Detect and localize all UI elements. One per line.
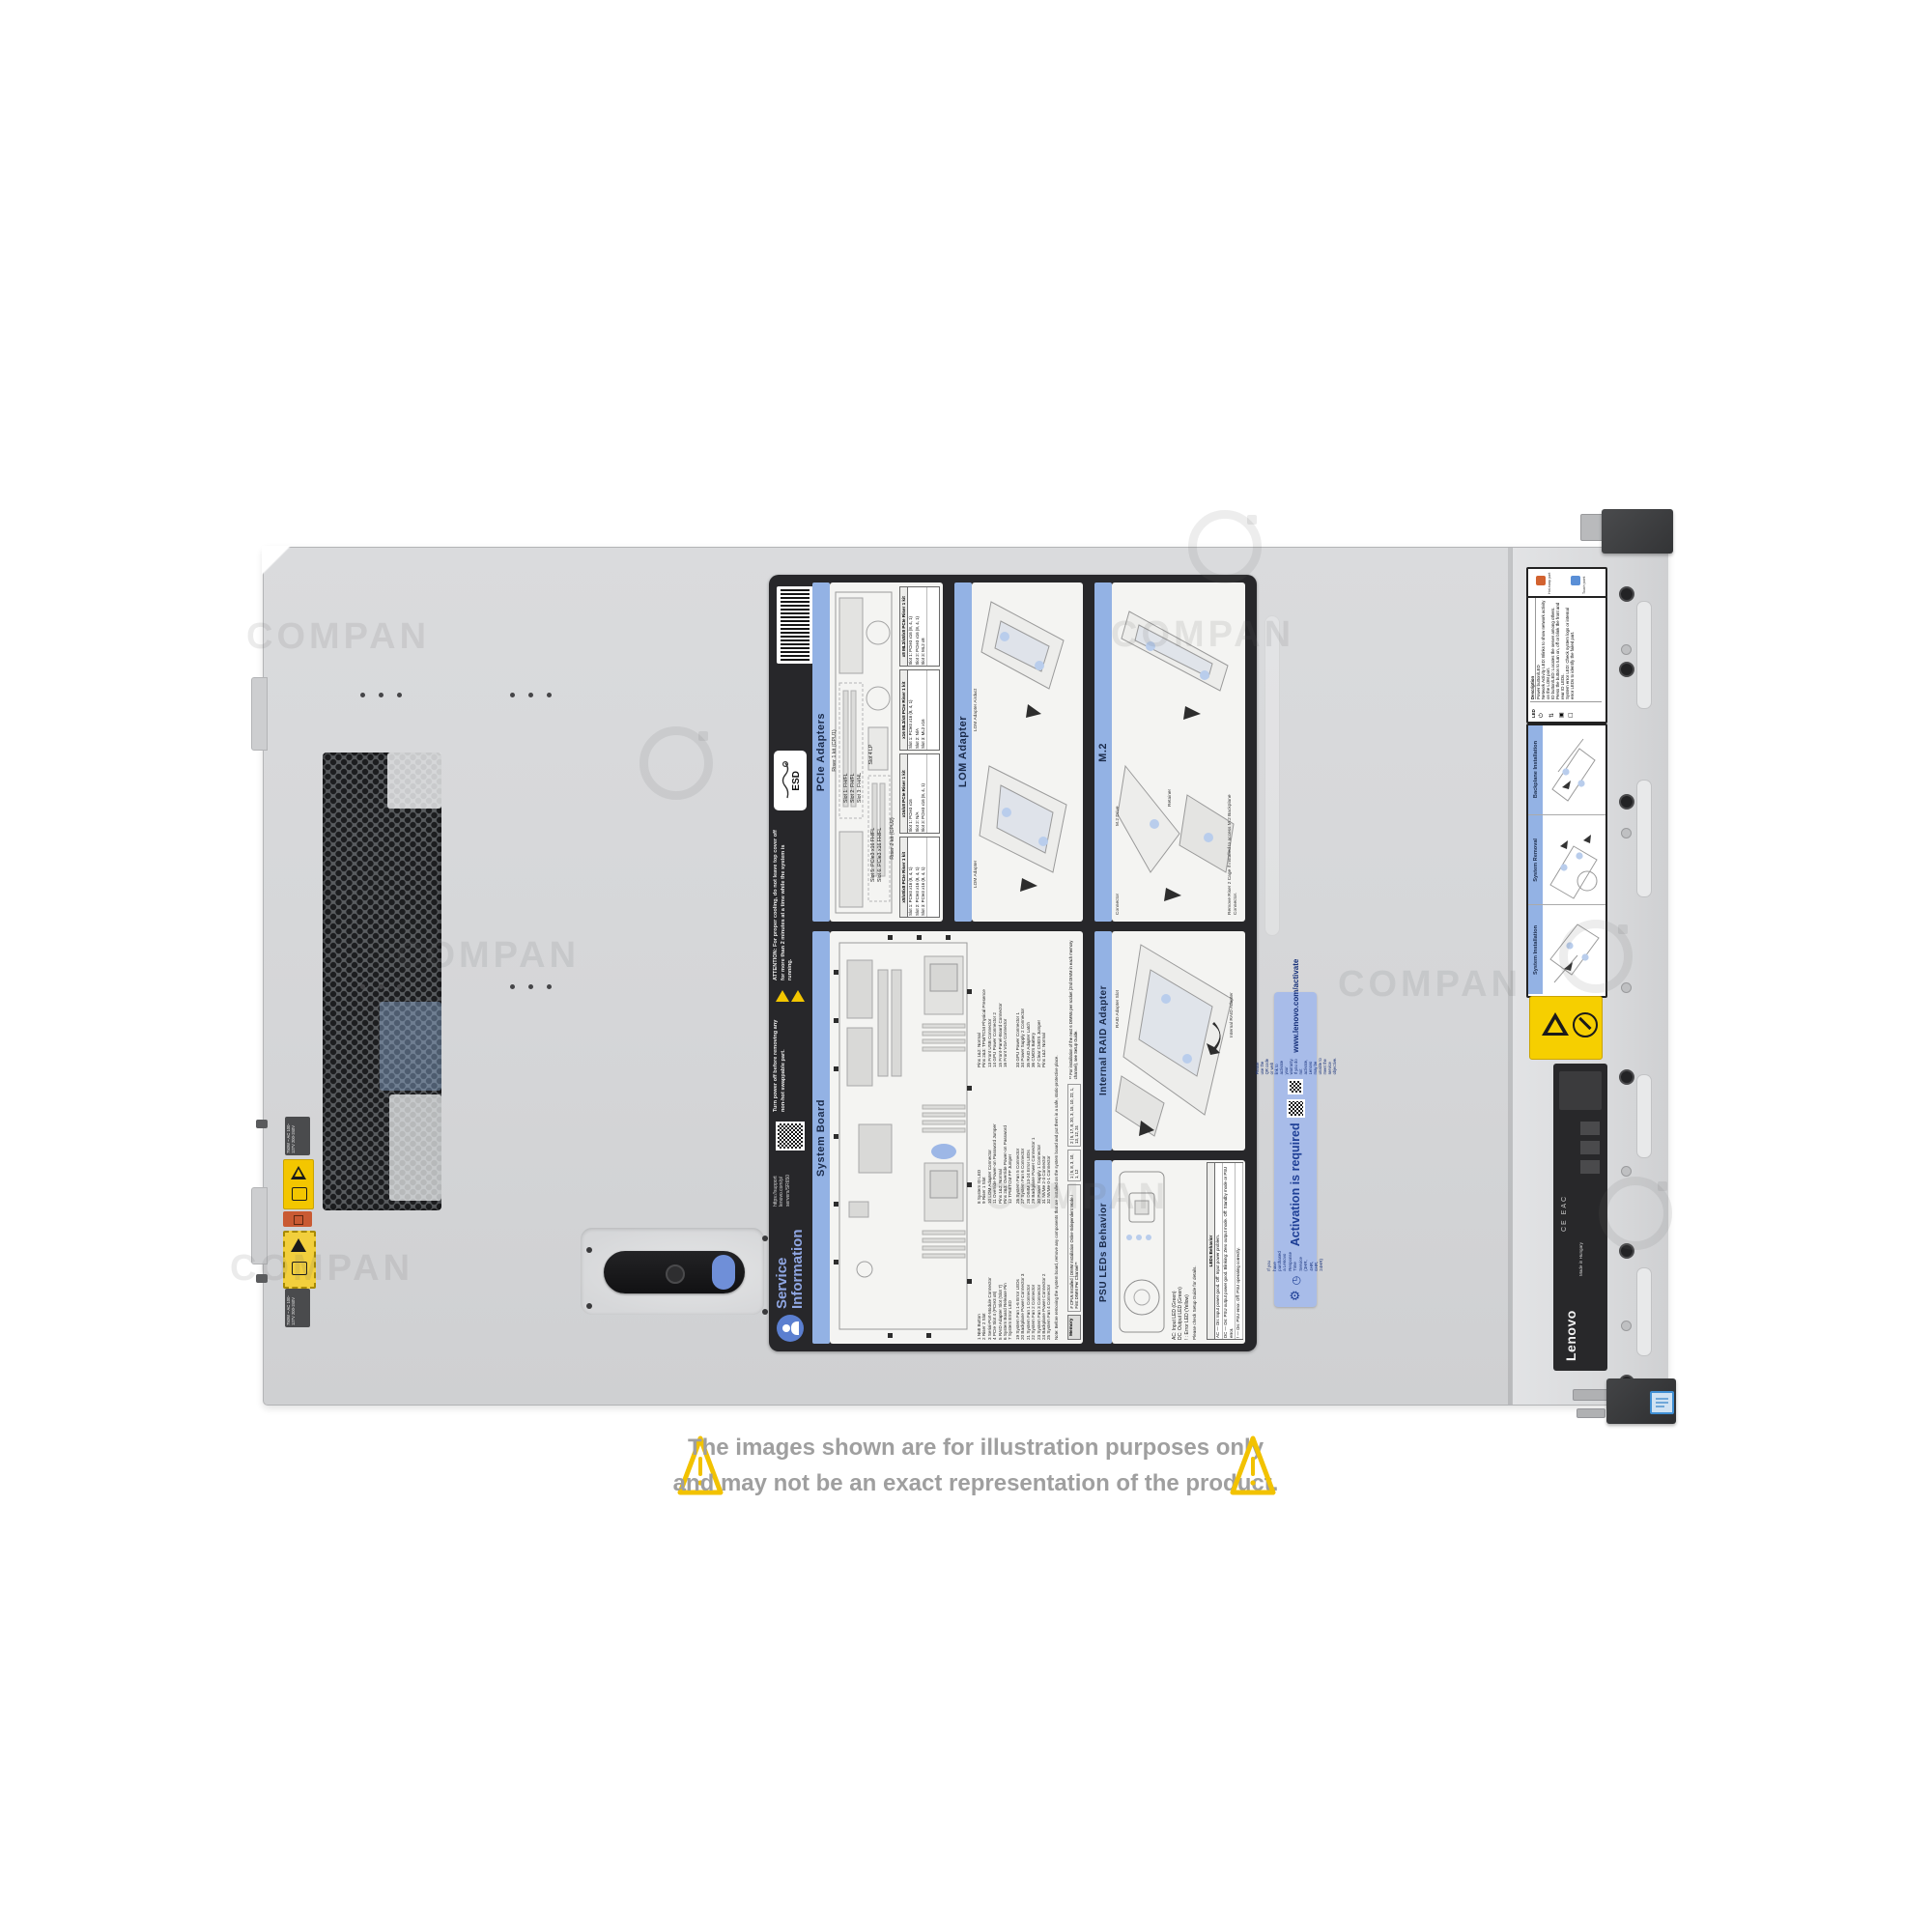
cert-marks: CE EAC [1561,1116,1575,1232]
rail-screw [1619,586,1634,602]
memory-title: Memory [1067,1315,1081,1340]
rail-screw [1619,794,1634,810]
attention-note: ATTENTION: For proper cooling, do not le… [773,824,808,980]
service-title-line2: Information [790,1230,806,1310]
section-bar-system-board: System Board [812,931,830,1344]
hot-swap-caption: Hot-swap part [1548,571,1557,594]
psu-behavior-table-inner: LEDs Behavior AC — On: Input power good.… [1207,1162,1243,1340]
orange-caution-sticker [283,1211,312,1227]
vent-light-patch [389,1094,441,1201]
server-chassis-top-cover: 750W ~ AC 100-127V 200-240V 750W ~ AC 10… [263,547,1668,1406]
section-title-m2: M.2 [1097,743,1109,762]
riser-table-2: x16/x8 PCIe Riser 1 kit Slot 1: PCIe3 x1… [899,753,940,835]
rivet-group [510,693,558,698]
section-content-system-board: 1 NMI Button 2 Riser 2 Slot 3 Serial-Por… [830,931,1083,1344]
system-error-icon: ☐ [1568,702,1575,718]
origin-text: Made in Hungary [1578,1189,1590,1276]
power-off-note-text: Turn power off before removing any non-h… [773,1009,808,1112]
warning-triangle-inner [1548,1019,1563,1033]
riser2-caption: Riser 2 kit (CPU2) [890,776,899,901]
raid-slot-label: RAID Adapter Slot [1116,951,1124,1028]
section-bar-m2: M.2 [1094,582,1112,922]
guide-section-installation: System Installation [1528,905,1605,994]
rivet-group [360,693,409,698]
rail-slot [1636,1074,1652,1158]
vent-highlight-patch [387,753,441,809]
activation-label: ⚙ ◷ If you have purchased a Lenovo Respo… [1274,992,1317,1307]
chassis-notch [251,1187,268,1264]
guide-bar-removal: System Removal [1528,815,1543,904]
m2-drive-label: M.2 Drive [1116,772,1124,826]
m2-sketch [1112,582,1245,922]
riser1-slot-list: Slot 1: FH/FL Slot 2: FH/FL Slot 3: FH/H… [843,696,865,803]
led-table: LED ⏻ ⇅ ▣ ☐ Description Power button/LED… [1530,598,1602,718]
latch-screw [586,1303,592,1309]
psu-led-legend-text: AC: Input LED (Green) DC: Output LED (Gr… [1172,1164,1190,1340]
lift-warning-sticker [1529,996,1603,1060]
rail-screw [1619,662,1634,677]
electric-hazard-sticker [283,1159,314,1209]
hazard-triangle-inner [295,1169,302,1177]
id-button-icon: ▣ [1558,702,1565,718]
section-title-pcie: PCIe Adapters [815,713,827,791]
system-board-legend-col2: 19 System Fan 1-6 Error LEDs 20 Backplan… [1015,935,1052,1340]
memory-table: Memory # CPUs Installed | DIMM Installat… [1067,935,1081,1340]
rail-slot [1636,1267,1652,1356]
regulatory-mark [1580,1122,1600,1135]
psu-led-legend: AC: Input LED (Green) DC: Output LED (Gr… [1172,1164,1205,1340]
product-photo-stage: 750W ~ AC 100-127V 200-240V 750W ~ AC 10… [0,0,1932,1932]
memory-table-row: Memory # CPUs Installed | DIMM Installat… [1067,935,1081,1340]
section-title-psu: PSU LEDs Behavior [1098,1203,1109,1302]
raid-adapter-label: Internal RAID Adapter [1230,951,1238,1037]
activation-title: Activation is required [1289,1122,1302,1246]
latch-screw [762,1309,768,1315]
psu-row-err: ! — On: PSU error. Off: PSU operating co… [1236,1163,1242,1339]
guide-sketch-removal [1545,817,1603,902]
rail-screw [1619,1069,1634,1085]
psu-spec-label: 750W ~ AC 100-127V 200-240V [285,1117,310,1155]
riser-table-1: x8/x8/x8 PCIe Riser 1 kit Slot 1: PCIe3 … [899,838,940,919]
system-board-sketch [830,931,975,1344]
latch-lock-button[interactable] [666,1264,685,1284]
psu-spec-text: 750W ~ AC 100-127V 200-240V [286,1119,296,1153]
rack-ear-bottom [1606,1378,1676,1424]
memory-header: # CPUs Installed | DIMM Installation Ord… [1067,1184,1081,1312]
section-bar-psu: PSU LEDs Behavior [1094,1160,1112,1344]
esd-badge: ESD [774,751,807,810]
rail-screw-light [1621,982,1632,993]
cover-crease [1264,615,1280,936]
service-info-header: Service Information [769,1201,811,1346]
guide-section-removal: System Removal [1528,815,1605,905]
riser-table-3: x16 ML2/x8 PCIe Riser 1 kit Slot 1: PCIe… [899,670,940,752]
section-content-m2: M.2 Drive Connector Retainer Remove Rise… [1112,582,1245,922]
psu-row-ac: AC — On: Input power good. Off: Input po… [1215,1163,1222,1339]
caution-glyph [294,1215,303,1225]
activation-row: ⚙ ◷ If you have purchased a Lenovo Respo… [1274,992,1317,1307]
rack-ear-pin [1577,1408,1605,1418]
gear-icon: ⚙ [1288,1290,1303,1301]
m2-retainer-label: Retainer [1168,753,1177,807]
barcode-bars [781,589,810,661]
chassis-pin [256,1120,268,1128]
chassis-chamfer [262,546,291,575]
psu-spec-text: 750W ~ AC 100-127V 200-240V [286,1291,296,1325]
electric-hazard-sticker-dashed [283,1231,316,1289]
rail-slot [1636,780,1652,897]
rail-screw-light [1621,828,1632,838]
rail-screw-light [1621,1321,1632,1331]
product-info-label: CE EAC Made in Hungary Lenovo [1553,1064,1607,1371]
guide-sketch-backplane [1545,727,1603,812]
rail-slot [1636,601,1652,709]
service-title-line1: Service [775,1230,790,1310]
guide-section-backplane: Backplane Installation [1528,725,1605,815]
system-board-legend-col1: 1 NMI Button 2 Riser 2 Slot 3 Serial-Por… [977,935,1013,1340]
service-info-header-row: Service Information [769,1197,811,1346]
hazard-hand-icon [292,1187,307,1201]
front-badge [1650,1391,1674,1414]
psu-behavior-table: LEDs Behavior AC — On: Input power good.… [1207,1164,1241,1340]
section-title-lom: LOM Adapter [957,716,969,787]
chassis-pin [256,1274,268,1283]
regulatory-mark [1580,1160,1600,1174]
hazard-hand-icon [292,1262,307,1275]
network-activity-icon: ⇅ [1548,702,1555,718]
esd-wrist-strap-icon [780,761,791,800]
power-off-note: Turn power off before removing any non-h… [773,1009,808,1112]
section-title-raid: Internal RAID Adapter [1098,985,1109,1095]
section-content-raid: RAID Adapter Slot Internal RAID Adapter [1112,931,1245,1151]
guide-sketch-installation [1545,907,1603,992]
led-table-rows: Power button/LED Network Activity LED: B… [1536,598,1575,699]
system-board-note: Note: Before removing the system board, … [1054,935,1066,1340]
led-table-header-col: LED ⏻ ⇅ ▣ ☐ [1530,701,1602,718]
riser2-slot-list: Slot 5: PCIe3 x16 FH/FL Slot 6: PCIe3 x1… [870,781,886,882]
riser1-caption: Riser 1 kit (CPU1) [832,687,841,814]
section-bar-lom: LOM Adapter [954,582,972,922]
riser-kit-tables: x8/x8/x8 PCIe Riser 1 kit Slot 1: PCIe3 … [899,586,940,918]
riser-table-4: x8 ML2/x8/x8 PCIe Riser 1 kit Slot 1: PC… [899,586,940,668]
led-description-label: LED ⏻ ⇅ ▣ ☐ Description Power button/LED… [1526,596,1607,724]
riser-kit-tables-row: x8/x8/x8 PCIe Riser 1 kit Slot 1: PCIe3 … [899,586,940,918]
vent-fan-blue-patch [380,1002,441,1091]
hot-swap-icon [1536,576,1546,585]
section-title-system-board: System Board [815,1099,827,1177]
section-bar-pcie: PCIe Adapters [812,582,830,922]
memory-row1: 1 | 5, 8, 3, 10, 1, 12 [1067,1150,1081,1181]
service-information-label: ESD ATTENTION: For proper cooling, do no… [769,575,1257,1351]
lom-airduct-label: LOM Adapter Airduct [974,639,982,731]
disclaimer-warning-icon-right [1229,1434,1277,1499]
activation-qr-code [1287,1099,1305,1118]
latch-touch-point[interactable] [712,1255,735,1290]
chassis-notch [251,677,268,751]
touchpoint-legend-label: Hot-swap part Touch point [1526,567,1607,598]
memory-row2: 2 | 5, 17, 8, 20, 3, 15, 10, 22, 1, 13, … [1067,1084,1081,1147]
touch-point-icon [1571,576,1580,585]
m2-note: Remove Riser 2 Cage if installed to acce… [1228,772,1241,915]
brand-logo: Lenovo [1563,1288,1582,1361]
service-info-title: Service Information [775,1230,806,1310]
power-button-icon: ⏻ [1539,702,1546,718]
rail-screw [1619,1243,1634,1259]
led-col-header: LED [1531,702,1536,718]
guide-bar-backplane: Backplane Installation [1528,725,1543,814]
support-qr-code [776,1122,805,1151]
slot4-label: Slot 4 LP [868,733,878,776]
guide-bar-installation: System Installation [1528,905,1543,994]
product-label-block [1559,1071,1602,1110]
no-stack-icon [1573,1012,1598,1037]
psu-spec-label: 750W ~ AC 100-127V 200-240V [285,1289,310,1327]
activation-url: www.lenovo.com/activate [1292,959,1300,1053]
rack-ear-pin [1573,1389,1609,1401]
lom-sketch [972,582,1083,922]
activation-instruction: Please use the QR code or web link to ac… [1255,1058,1337,1075]
hazard-triangle-icon [291,1238,306,1252]
activation-intro: If you have purchased a Lenovo Response … [1266,1251,1323,1271]
latch-screw [762,1236,768,1241]
warning-triangle-icon [776,990,789,1002]
psu-led-hint: Please check Setup Guide for details. [1192,1164,1197,1340]
memory-footnote: ** For installation of the next 6 DIMMs … [1067,935,1081,1081]
clock-icon: ◷ [1290,1276,1302,1286]
led-table-desc-col: Description Power button/LED Network Act… [1530,598,1602,699]
front-bezel: Hot-swap part Touch point LED ⏻ ⇅ ▣ ☐ [1512,548,1668,1405]
regulatory-mark [1580,1141,1600,1154]
lom-adapter-label: LOM Adapter [974,810,982,888]
service-person-icon [777,1315,804,1342]
section-content-lom: LOM Adapter Airduct LOM Adapter [972,582,1083,922]
rail-screw-light [1621,1166,1632,1177]
psu-row-dc: DC — On: PSU output power good. Blinking… [1223,1163,1236,1339]
psu-behavior-title: LEDs Behavior [1207,1163,1215,1339]
rivet-group [360,984,409,990]
activation-qr-code-small [1288,1079,1303,1094]
barcode [777,586,813,664]
installation-guide-label: Backplane Installation System Removal [1526,724,1607,998]
warning-triangle-icon [791,990,805,1002]
raid-sketch [1112,931,1245,1151]
section-bar-raid: Internal RAID Adapter [1094,931,1112,1151]
latch-screw [586,1247,592,1253]
attention-note-text: ATTENTION: For proper cooling, do not le… [773,824,808,980]
psu-led-legend-inner: AC: Input LED (Green) DC: Output LED (Gr… [1172,1164,1205,1340]
cover-latch-handle[interactable] [604,1251,745,1293]
rail-screw-light [1621,644,1632,655]
rivet-group [510,984,558,990]
section-content-psu: AC: Input LED (Green) DC: Output LED (Gr… [1112,1160,1245,1344]
section-content-pcie: Riser 1 kit (CPU1) Riser 2 kit (CPU2) Sl… [830,582,943,922]
m2-connector-label: Connector [1116,861,1124,915]
touch-point-caption: Touch point [1582,571,1592,594]
esd-text: ESD [791,771,802,791]
rack-ear-top [1602,509,1673,554]
psu-sketch [1116,1166,1168,1338]
